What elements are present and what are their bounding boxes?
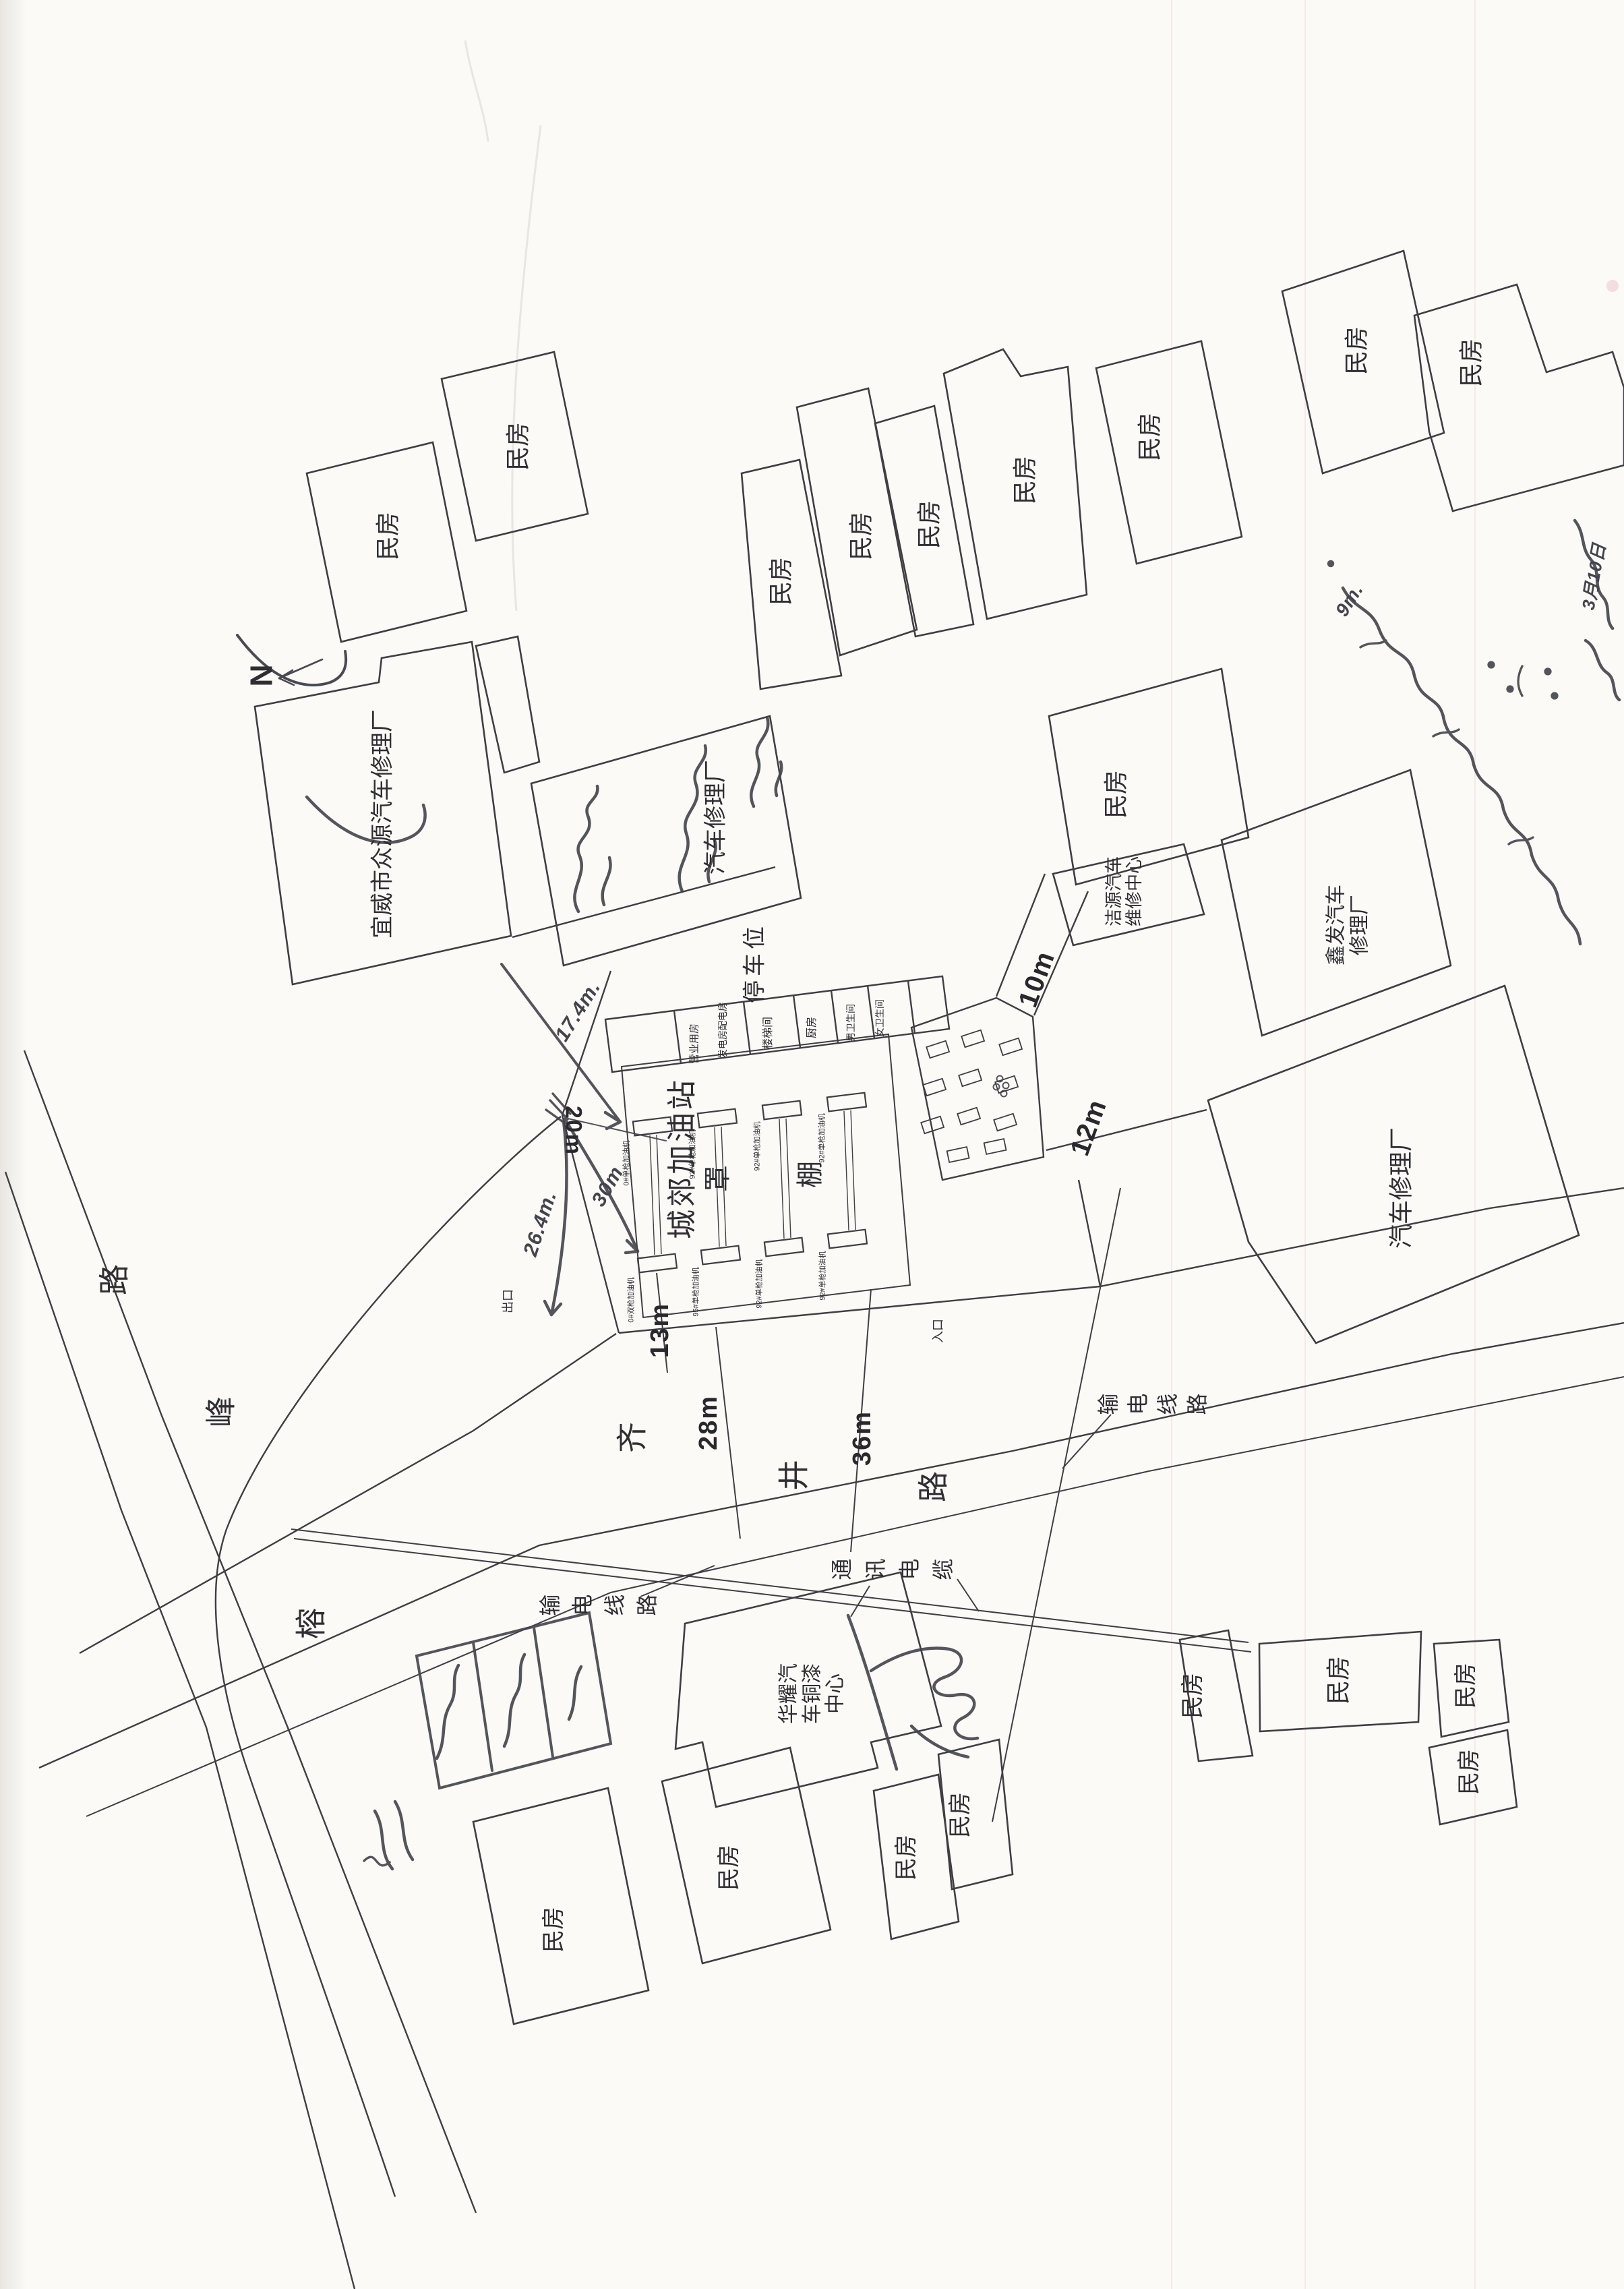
measurement-13m: 13m (646, 1303, 675, 1358)
residential-label: 民房 (1180, 1673, 1206, 1719)
residential-label: 民房 (847, 512, 874, 560)
residential-label: 民房 (1456, 1749, 1482, 1795)
exit-label: 出口 (502, 1289, 516, 1313)
site-plan-scan: N 民房 民房 民房 民房 民房 民房 民房 民房 民房 民房 民房 民房 民房… (0, 0, 1624, 2289)
mid-repair-factory-label: 汽车修理厂 (702, 760, 729, 874)
yiwei-repair-factory-label: 宜威市众源汽车修理厂 (369, 709, 396, 939)
jieyuan-line2: 维修中心 (1124, 856, 1145, 926)
dispenser-label: 92#单枪加油机 (819, 1251, 828, 1300)
xinfa-line1: 鑫发汽车 (1325, 885, 1349, 965)
huayao-center-label: 华耀汽 车铜漆 中心 (777, 1663, 847, 1724)
xinfa-line2: 修理厂 (1348, 885, 1372, 965)
comm-cable-label: 通讯电缆 (831, 1559, 965, 1584)
entrance-label: 入口 (932, 1319, 946, 1343)
room-toilet-f-label: 女卫生间 (874, 999, 885, 1037)
residential-label: 民房 (947, 1792, 973, 1838)
canopy-char-label: 棚 (795, 1161, 826, 1188)
measurement-20m: 20m (560, 1106, 586, 1156)
dispenser-label: 95#单枪加油机 (692, 1267, 701, 1316)
utility-lines (86, 1188, 1624, 1822)
power-line-label: 输电线路 (1097, 1394, 1215, 1419)
room-generator-label: 发电房配电房 (717, 1002, 728, 1059)
site-plan-linework (0, 0, 1624, 2289)
road-qijing-char: 井 (777, 1460, 812, 1491)
residential-label: 民房 (1453, 1663, 1479, 1708)
road-qijing-char: 路 (916, 1471, 952, 1502)
road-qijing-char: 齐 (615, 1422, 651, 1453)
room-stair-label: 楼梯间 (762, 1017, 775, 1049)
measurement-36m: 36m (848, 1410, 878, 1466)
room-business-label: 营业用房 (688, 1023, 700, 1064)
residential-label: 民房 (766, 557, 794, 605)
residential-label: 民房 (541, 1907, 567, 1953)
residential-label: 民房 (1342, 326, 1370, 375)
residential-label: 民房 (373, 512, 401, 560)
north-label: N (244, 664, 280, 686)
power-line-label: 输电线路 (539, 1595, 668, 1619)
road-rongfeng-char: 峰 (204, 1396, 239, 1427)
dispenser-label: 92#单枪加油机 (754, 1121, 762, 1170)
residential-label: 民房 (1135, 413, 1163, 461)
canopy-char-label: 罩 (702, 1165, 733, 1192)
huayao-line2: 车铜漆 (801, 1663, 824, 1724)
residential-label: 民房 (1011, 456, 1038, 504)
residential-label: 民房 (1457, 338, 1484, 387)
dispenser-label: 92#单枪加油机 (756, 1259, 764, 1308)
road-rongfeng-char: 榕 (294, 1608, 330, 1639)
dimension-lines (657, 1273, 871, 1552)
residential-label: 民房 (1102, 770, 1129, 819)
room-kitchen-label: 厨房 (806, 1017, 818, 1038)
xinfa-factory-label: 鑫发汽车 修理厂 (1325, 885, 1372, 965)
parcel-boundaries (512, 867, 1207, 1333)
residential-label: 民房 (504, 422, 531, 471)
residential-label: 民房 (716, 1845, 742, 1891)
parking-label: 停车位 (742, 922, 768, 1003)
residential-label: 民房 (915, 500, 942, 549)
dispenser-label: 92#单枪加油机 (689, 1129, 698, 1179)
room-toilet-m-label: 男卫生间 (845, 1004, 856, 1042)
handwritten-marks (307, 521, 1619, 1869)
huayao-line1: 华耀汽 (777, 1663, 801, 1724)
road-rongfeng-char: 路 (97, 1264, 133, 1295)
dispenser-label: 0#双枪加油机 (628, 1277, 636, 1322)
jieyuan-center-label: 洁源汽车 维修中心 (1104, 856, 1145, 926)
huayao-line3: 中心 (824, 1663, 847, 1724)
dispenser-label: 92#单枪加油机 (818, 1113, 827, 1162)
residential-label: 民房 (893, 1835, 920, 1880)
measurement-28m: 28m (694, 1395, 724, 1450)
residential-label: 民房 (1324, 1656, 1352, 1704)
jieyuan-line1: 洁源汽车 (1104, 856, 1124, 926)
right-repair-factory-label: 汽车修理厂 (1387, 1127, 1414, 1249)
